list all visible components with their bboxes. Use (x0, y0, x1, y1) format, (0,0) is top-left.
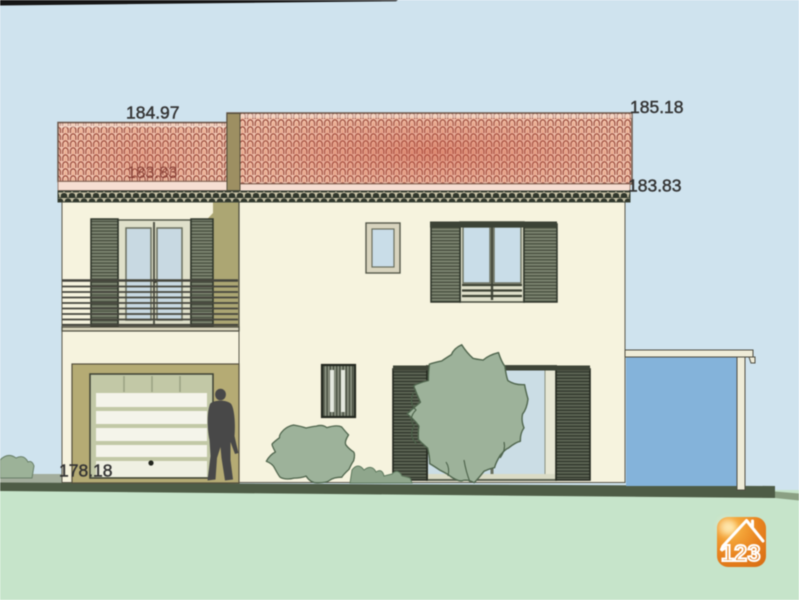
svg-text:178.18: 178.18 (59, 461, 113, 481)
svg-text:183.83: 183.83 (127, 164, 177, 182)
svg-text:123: 123 (721, 540, 761, 566)
svg-text:183.83: 183.83 (628, 176, 682, 196)
svg-text:184.97: 184.97 (126, 103, 180, 123)
svg-text:185.18: 185.18 (630, 97, 684, 117)
